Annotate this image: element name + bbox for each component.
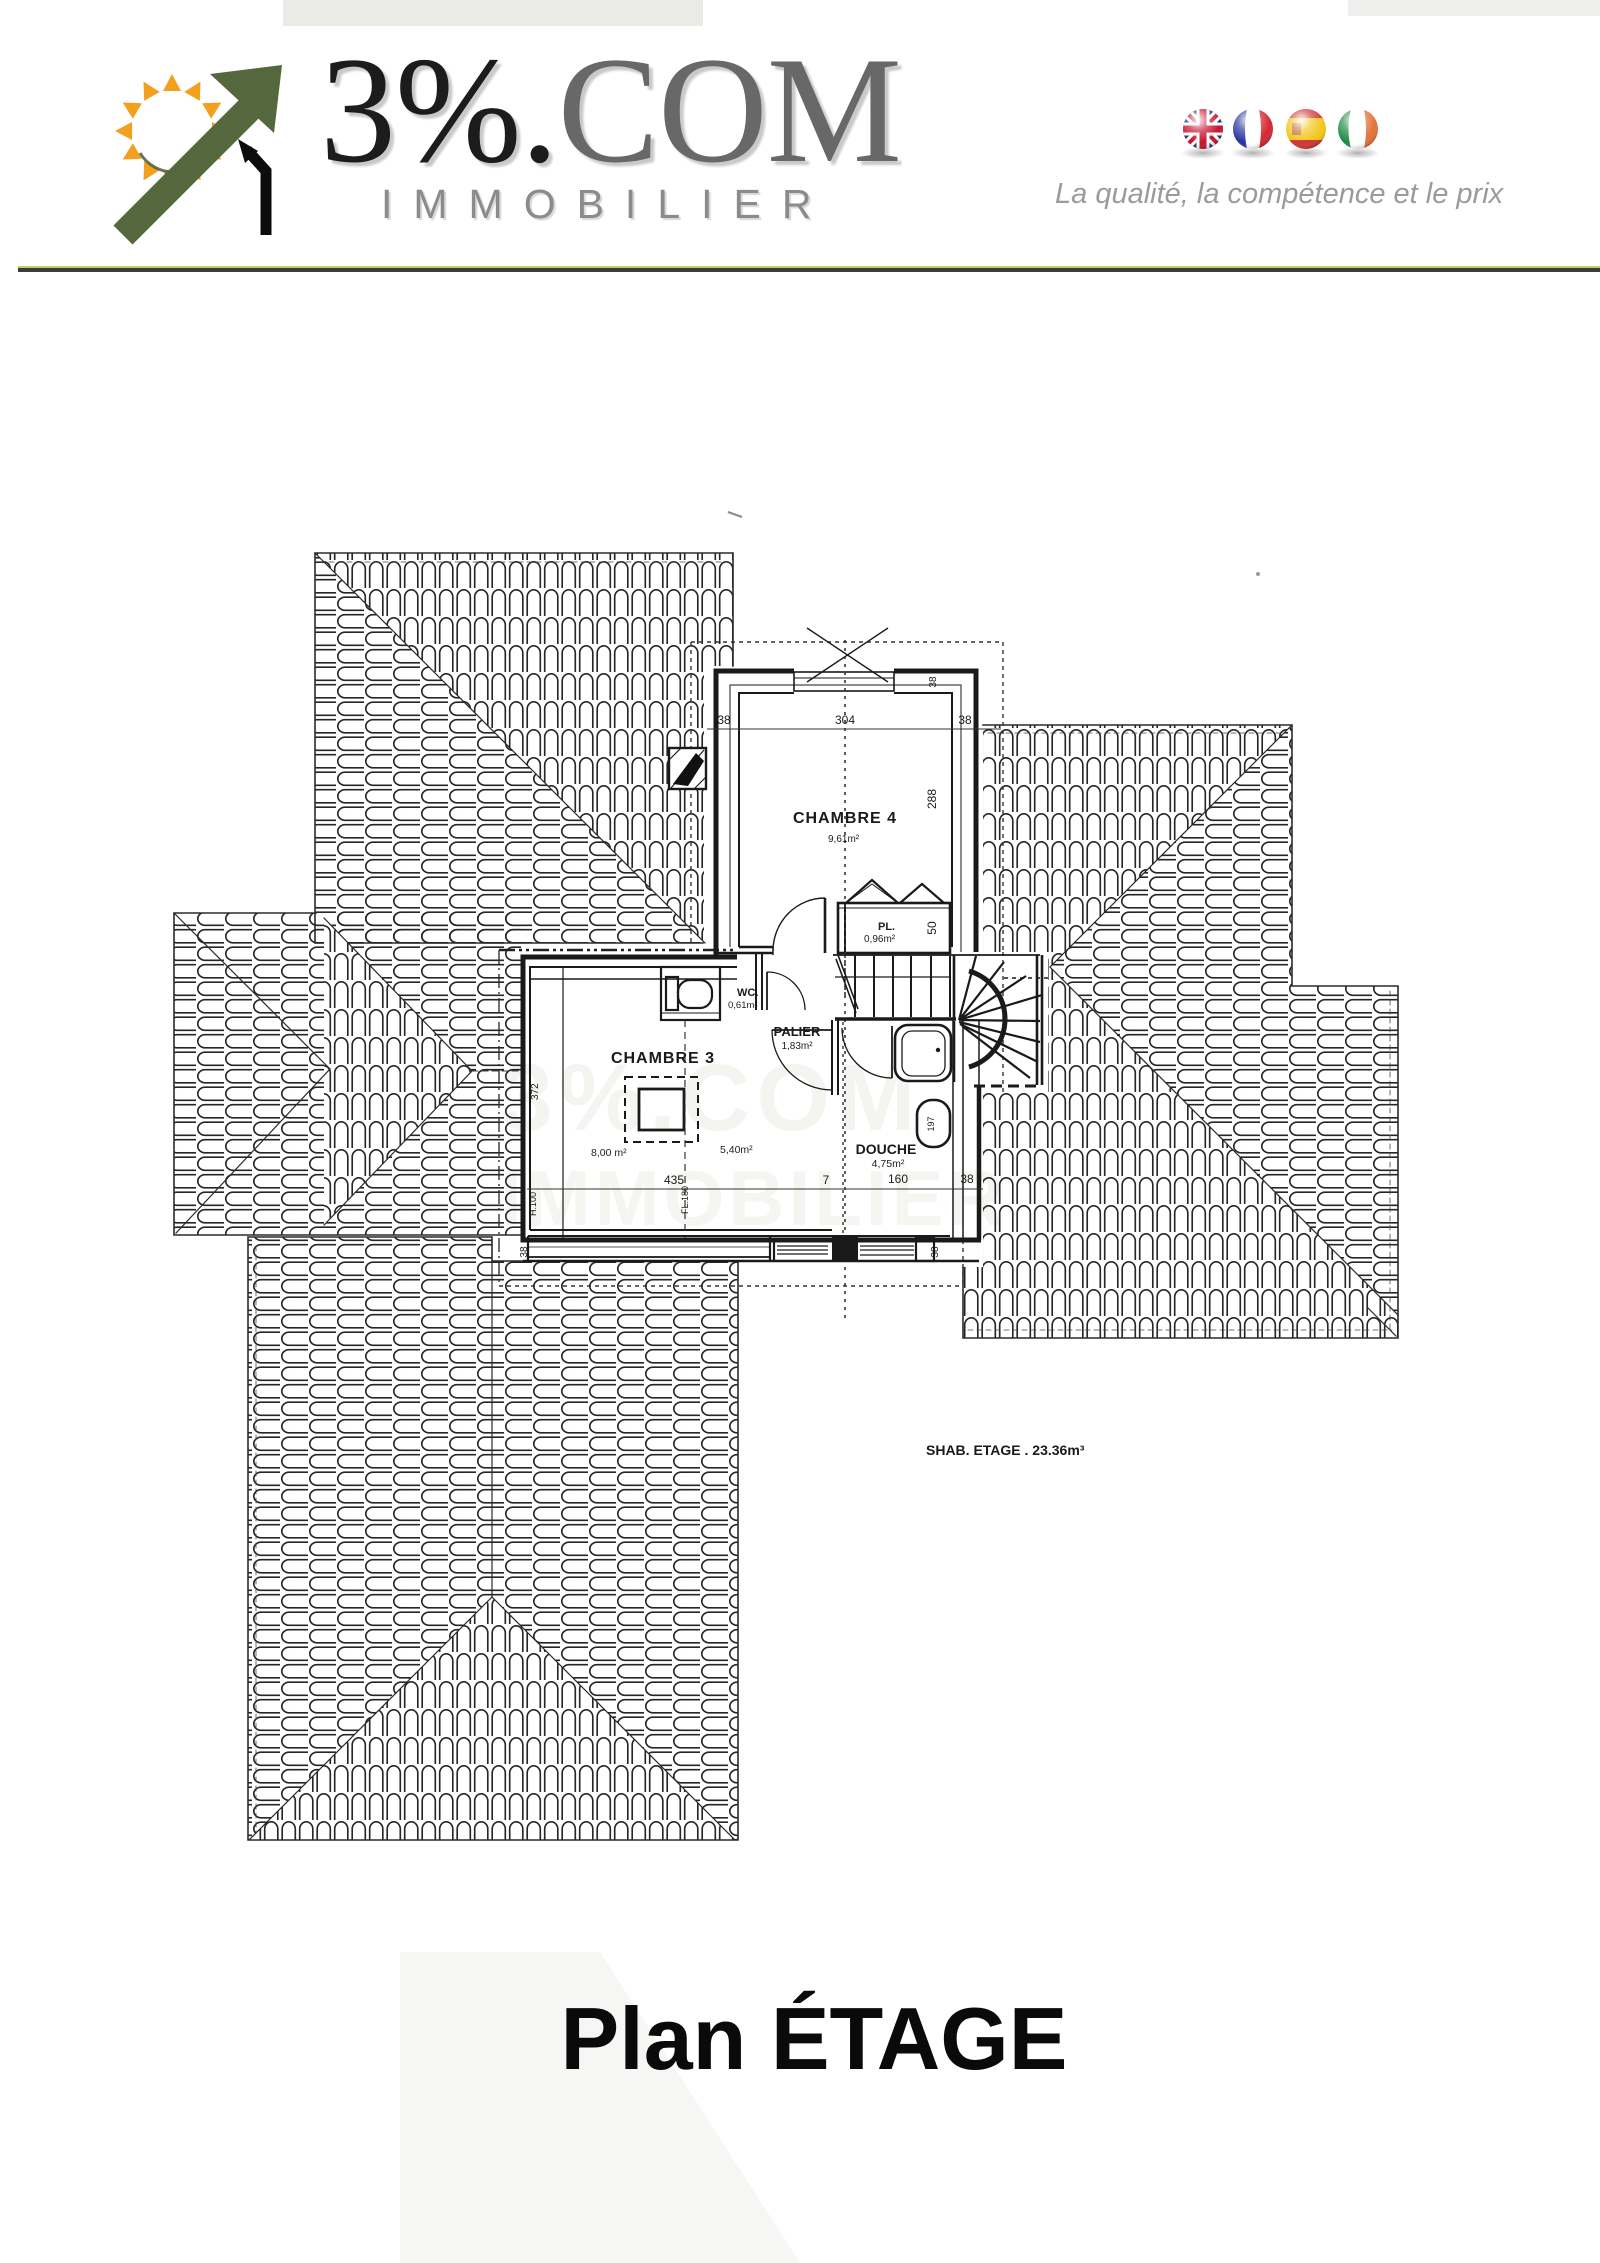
svg-text:50: 50 <box>925 921 939 935</box>
svg-text:435: 435 <box>664 1173 684 1187</box>
svg-text:304: 304 <box>835 713 855 727</box>
svg-text:H.100: H.100 <box>528 1192 538 1216</box>
svg-text:4,75m²: 4,75m² <box>872 1158 905 1170</box>
svg-text:0,61m²: 0,61m² <box>728 1000 758 1011</box>
svg-text:8,00 m²: 8,00 m² <box>591 1147 627 1159</box>
svg-text:CHAMBRE 3: CHAMBRE 3 <box>611 1050 715 1067</box>
svg-text:372: 372 <box>530 1083 541 1100</box>
svg-text:288: 288 <box>925 789 939 809</box>
svg-text:197: 197 <box>926 1116 936 1131</box>
svg-text:PL.: PL. <box>878 921 895 933</box>
svg-text:38: 38 <box>960 1172 974 1186</box>
svg-text:CHAMBRE 4: CHAMBRE 4 <box>793 810 897 827</box>
svg-text:1,83m²: 1,83m² <box>781 1041 813 1052</box>
svg-text:FL.180: FL.180 <box>680 1186 690 1214</box>
svg-text:SHAB. ETAGE . 23.36m³: SHAB. ETAGE . 23.36m³ <box>926 1442 1085 1458</box>
svg-text:7: 7 <box>823 1173 830 1187</box>
svg-text:IMMOBILIER: IMMOBILIER <box>500 1154 1008 1242</box>
svg-text:0,96m²: 0,96m² <box>864 934 896 945</box>
svg-text:38: 38 <box>930 1246 941 1258</box>
svg-text:38: 38 <box>928 676 939 688</box>
svg-text:38: 38 <box>958 713 972 727</box>
svg-text:DOUCHE: DOUCHE <box>856 1141 917 1157</box>
svg-text:38: 38 <box>717 713 731 727</box>
svg-text:5,40m²: 5,40m² <box>720 1144 753 1156</box>
svg-text:160: 160 <box>888 1172 908 1186</box>
svg-text:PALIER: PALIER <box>774 1024 821 1039</box>
svg-text:9,61m²: 9,61m² <box>828 834 860 845</box>
